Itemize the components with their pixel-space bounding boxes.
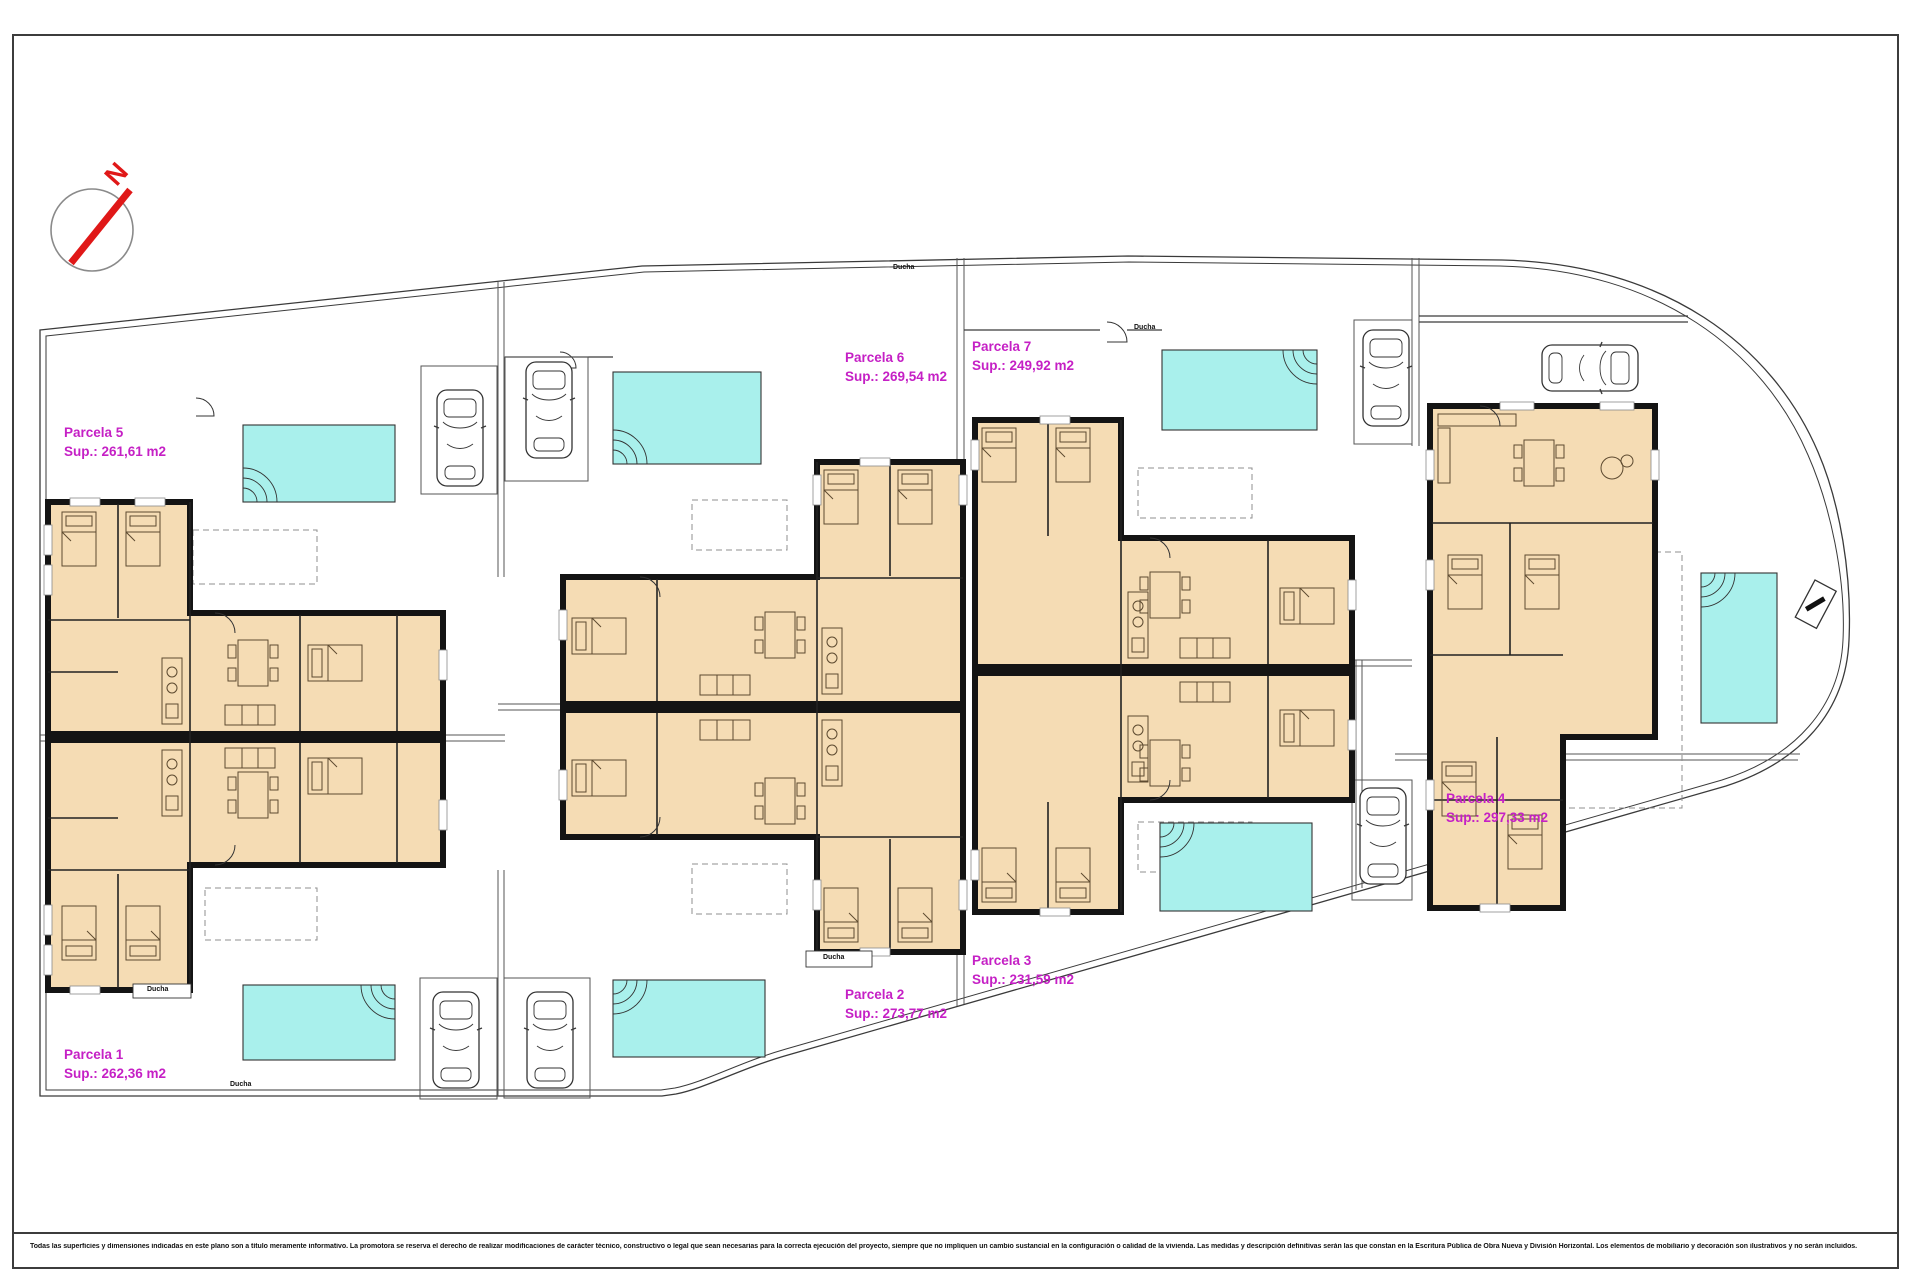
site-plan-drawing: N [0,0,1920,1280]
car-icon [430,992,482,1088]
parcel-label-4: Parcela 4 Sup.: 297,33 m2 [1446,790,1548,828]
outdoor-shower-label: Ducha [147,986,168,993]
parcel-label-7: Parcela 7 Sup.: 249,92 m2 [972,338,1074,376]
parcel-name: Parcela 1 [64,1046,166,1065]
pool-parcela-6 [613,372,761,464]
pool-parcela-7 [1162,350,1317,430]
parcel-area: Sup.: 231,59 m2 [972,971,1074,990]
car-icon [1357,788,1409,884]
pool-parcela-3 [1160,823,1312,911]
building-parcelas-5-1 [48,502,443,990]
parcel-label-5: Parcela 5 Sup.: 261,61 m2 [64,424,166,462]
parcel-label-1: Parcela 1 Sup.: 262,36 m2 [64,1046,166,1084]
parcel-label-2: Parcela 2 Sup.: 273,77 m2 [845,986,947,1024]
north-compass: N [51,157,134,271]
parcel-area: Sup.: 249,92 m2 [972,357,1074,376]
building-parcelas-6-2 [563,462,963,952]
parcel-name: Parcela 4 [1446,790,1548,809]
outdoor-shower-label: Ducha [823,954,844,961]
north-label: N [99,157,134,192]
car-icon [1360,330,1412,426]
parcel-area: Sup.: 273,77 m2 [845,1005,947,1024]
site-plan-sheet: N Parcela 1 Sup.: 262,36 m2 Parcela 2 Su… [0,0,1920,1280]
car-icon [523,362,575,458]
parcel-area: Sup.: 262,36 m2 [64,1065,166,1084]
parcel-area: Sup.: 261,61 m2 [64,443,166,462]
boundary-gate-marker [1795,580,1836,628]
building-parcela-4 [1430,406,1655,908]
parcel-name: Parcela 7 [972,338,1074,357]
car-icon [524,992,576,1088]
car-icon [1542,342,1638,394]
parcel-label-6: Parcela 6 Sup.: 269,54 m2 [845,349,947,387]
parcel-label-3: Parcela 3 Sup.: 231,59 m2 [972,952,1074,990]
car-icon [434,390,486,486]
parcel-name: Parcela 5 [64,424,166,443]
outdoor-shower-label: Ducha [230,1081,251,1088]
footer-divider [12,1232,1899,1234]
outdoor-shower-label: Ducha [893,264,914,271]
parcel-name: Parcela 6 [845,349,947,368]
parcel-name: Parcela 3 [972,952,1074,971]
disclaimer-text: Todas las superficies y dimensiones indi… [30,1243,1892,1250]
pool-parcela-2 [613,980,765,1057]
outdoor-shower-label: Ducha [1134,324,1155,331]
pool-parcela-1 [243,985,395,1060]
parcel-area: Sup.: 269,54 m2 [845,368,947,387]
pool-parcela-5 [243,425,395,502]
parcel-area: Sup.: 297,33 m2 [1446,809,1548,828]
pool-parcela-4 [1701,573,1777,723]
parcel-name: Parcela 2 [845,986,947,1005]
